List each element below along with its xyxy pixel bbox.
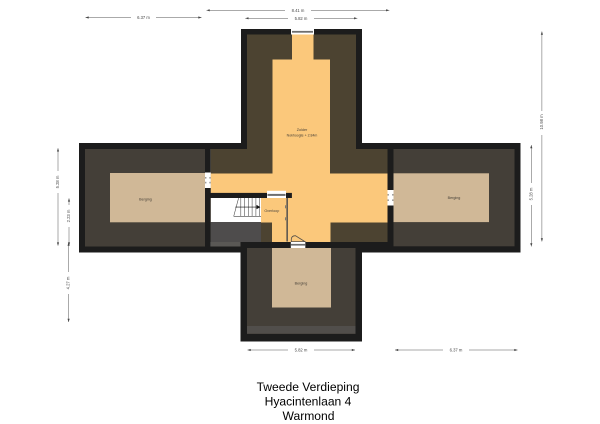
svg-text:5.82 m: 5.82 m: [295, 348, 308, 353]
svg-text:2.23 m: 2.23 m: [66, 209, 71, 222]
svg-text:6.37 m: 6.37 m: [450, 348, 463, 353]
svg-text:5.82 m: 5.82 m: [295, 16, 308, 21]
svg-text:Berging: Berging: [295, 281, 308, 285]
svg-text:Warmond: Warmond: [283, 409, 335, 423]
svg-text:Tweede Verdieping: Tweede Verdieping: [257, 380, 360, 394]
svg-text:10.98 m: 10.98 m: [539, 114, 544, 130]
svg-text:5.28 m: 5.28 m: [55, 175, 60, 188]
svg-text:5.28 m: 5.28 m: [528, 187, 533, 200]
svg-text:Zolder: Zolder: [297, 128, 308, 132]
svg-text:Overloop: Overloop: [264, 209, 279, 213]
svg-text:Berging: Berging: [139, 197, 152, 201]
svg-text:8.41 m: 8.41 m: [292, 8, 305, 13]
svg-text:4.27 m: 4.27 m: [66, 276, 71, 289]
svg-text:Nokhoogte + 2.84m: Nokhoogte + 2.84m: [287, 134, 318, 138]
svg-text:Hyacintenlaan 4: Hyacintenlaan 4: [265, 394, 352, 408]
svg-text:6.37 m: 6.37 m: [137, 15, 150, 20]
svg-text:Berging: Berging: [448, 196, 461, 200]
